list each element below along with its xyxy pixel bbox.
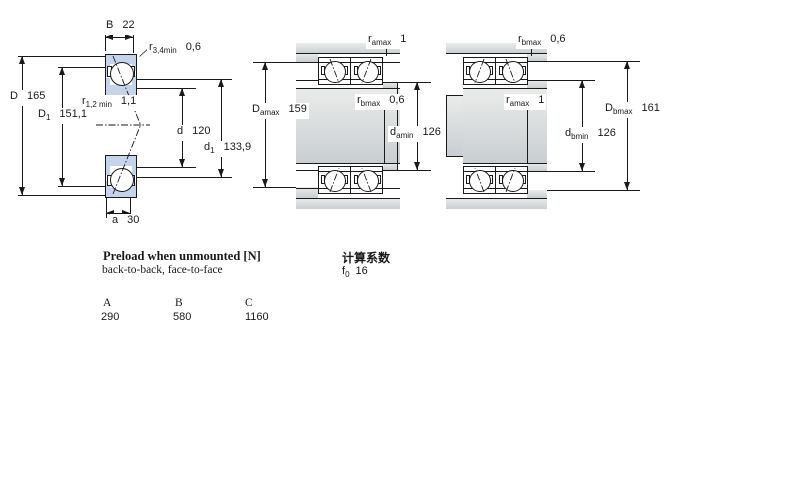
- dim-r34-label: r3,4min0,6: [147, 41, 203, 57]
- dim-value: 126: [597, 127, 615, 139]
- preload-value-c: 1160: [245, 311, 269, 323]
- dim-subscript: amax: [260, 108, 280, 117]
- dim-value: 161: [642, 102, 660, 114]
- dim-value: 16: [356, 265, 368, 277]
- dim-value: 165: [27, 90, 45, 102]
- dim-symbol: d: [177, 125, 183, 137]
- dim-value: 120: [192, 125, 210, 137]
- dim-subscript: amax: [510, 99, 530, 108]
- dim-value: 30: [127, 214, 139, 226]
- dim-symbol: D: [38, 108, 46, 120]
- dim-subscript: bmin: [571, 132, 588, 141]
- dim-subscript: amax: [372, 38, 392, 47]
- dim-dbmax-label: Dbmax161: [603, 102, 662, 118]
- calc-heading: 计算系数: [342, 249, 390, 266]
- dim-value: 0,6: [389, 94, 404, 106]
- dim-d1-outer-label: D1151,1: [36, 108, 89, 124]
- dim-subscript: 1,2 min: [86, 100, 112, 109]
- dim-value: 126: [422, 126, 440, 138]
- dim-symbol: D: [605, 102, 613, 114]
- dim-value: 1: [538, 94, 544, 106]
- preload-value-b: 580: [173, 311, 191, 323]
- dim-d-outer-label: D165: [8, 90, 47, 106]
- preload-subtitle: back-to-back, face-to-face: [102, 264, 223, 276]
- preload-value-a: 290: [101, 311, 119, 323]
- bearing-datasheet-drawing: B22 r3,4min0,6 D165 r1,2 min1,1 D1151,1 …: [0, 0, 800, 500]
- dim-value: 151,1: [59, 108, 87, 120]
- dim-bore-label: d120: [175, 125, 212, 141]
- dim-subscript: amin: [396, 131, 413, 140]
- dim-value: 1,1: [121, 95, 136, 107]
- dim-b-label: B22: [104, 19, 137, 35]
- dim-d1-inner-label: d1133,9: [202, 141, 253, 157]
- dim-value: 133,9: [224, 141, 252, 153]
- dim-symbol: B: [106, 19, 113, 31]
- dim-value: 1: [400, 33, 406, 45]
- dim-subscript: 1: [46, 113, 50, 122]
- dim-subscript: bmax: [522, 38, 542, 47]
- preload-title: Preload when unmounted [N]: [103, 249, 261, 264]
- dim-rbmax-mid-label: rbmax0,6: [355, 94, 407, 110]
- dim-symbol: D: [252, 103, 260, 115]
- preload-col-a: A: [103, 297, 111, 309]
- preload-col-c: C: [245, 297, 253, 309]
- dim-symbol: D: [10, 90, 18, 102]
- dim-damax-label: Damax159: [250, 103, 309, 119]
- dim-value: 0,6: [186, 41, 201, 53]
- dim-subscript: bmax: [361, 99, 381, 108]
- dim-subscript: 3,4min: [153, 46, 177, 55]
- dim-value: 0,6: [550, 33, 565, 45]
- dim-symbol: a: [112, 214, 118, 226]
- dim-subscript: bmax: [613, 107, 633, 116]
- dim-ramax-right-label: ramax1: [504, 94, 546, 110]
- dim-damin-label: damin126: [388, 126, 443, 142]
- dim-rbmax-right-label: rbmax0,6: [516, 33, 568, 49]
- dim-value: 159: [289, 103, 307, 115]
- dim-a-label: a30: [110, 214, 141, 230]
- dim-subscript: 0: [345, 270, 349, 279]
- calc-f0: f016: [342, 265, 368, 279]
- dim-subscript: 1: [210, 146, 214, 155]
- dim-dbmin-label: dbmin126: [563, 127, 618, 143]
- preload-col-b: B: [175, 297, 183, 309]
- dim-value: 22: [122, 19, 134, 31]
- dim-ramax-mid-label: ramax1: [366, 33, 408, 49]
